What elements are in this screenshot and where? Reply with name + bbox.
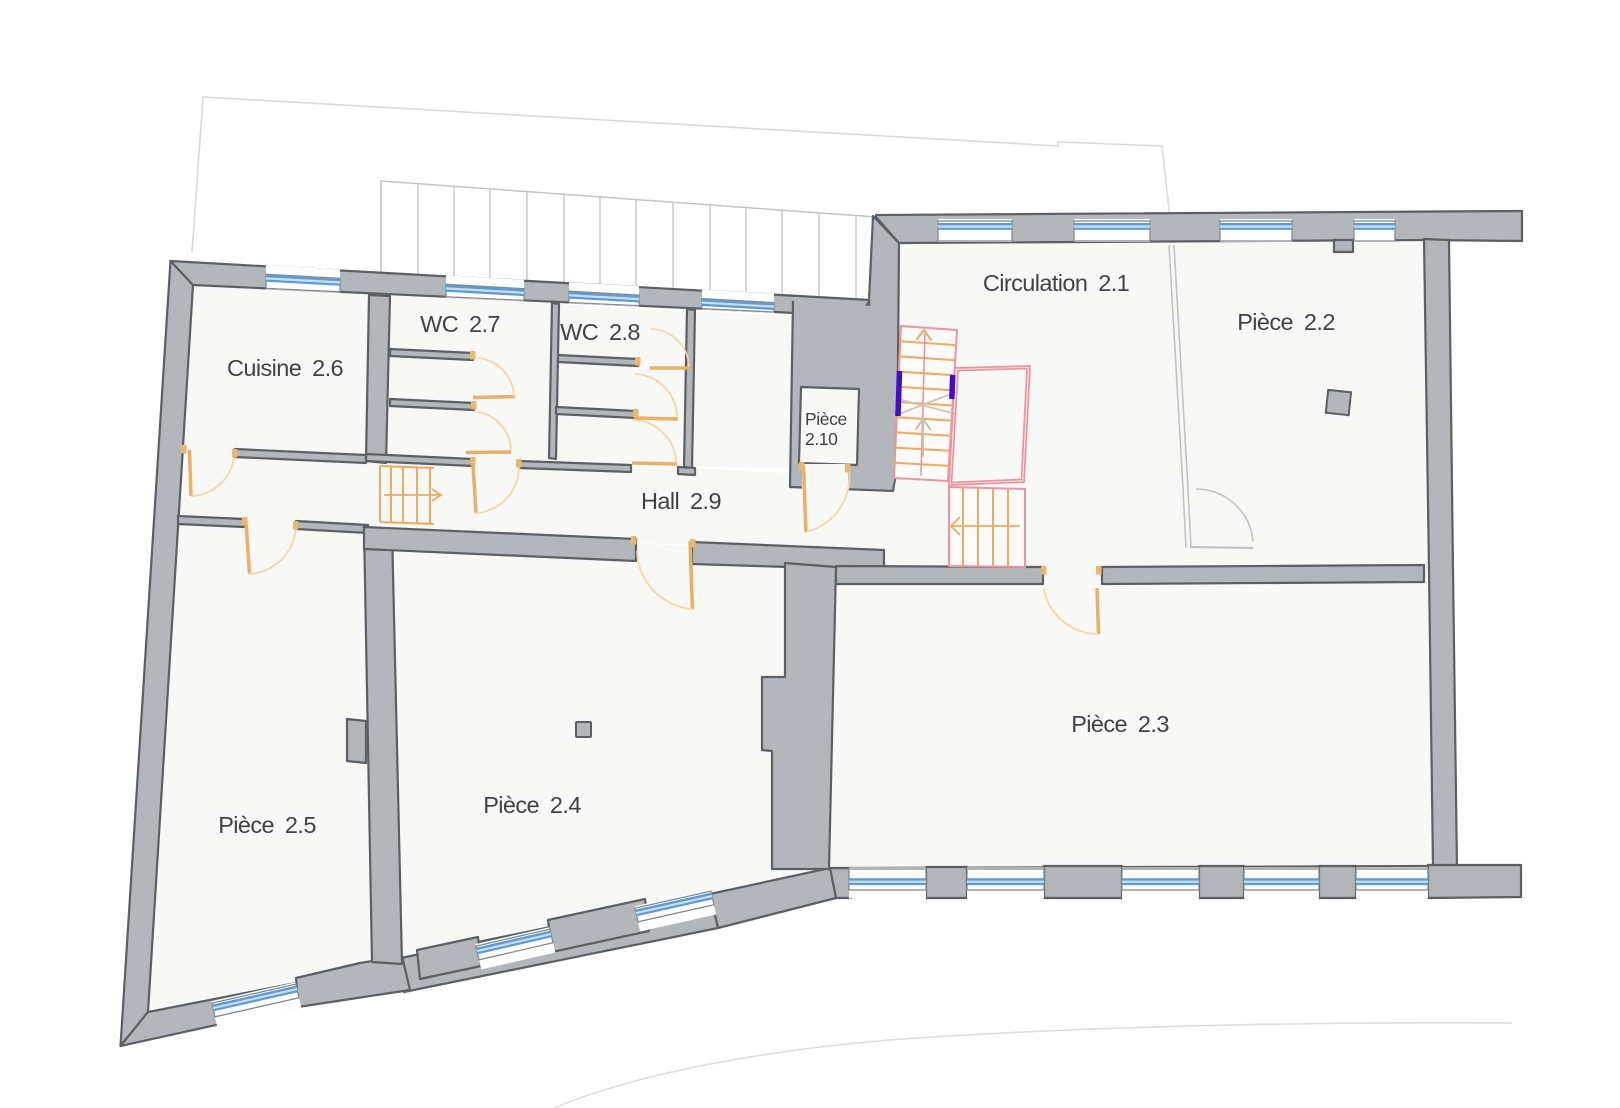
- svg-text:Pièce 2.4: Pièce 2.4: [483, 792, 581, 818]
- svg-text:2.10: 2.10: [805, 429, 838, 449]
- svg-text:Circulation 2.1: Circulation 2.1: [983, 270, 1129, 296]
- svg-text:Hall 2.9: Hall 2.9: [641, 488, 721, 514]
- svg-text:WC 2.8: WC 2.8: [560, 319, 640, 345]
- svg-text:WC 2.7: WC 2.7: [420, 311, 500, 337]
- svg-text:Pièce 2.2: Pièce 2.2: [1237, 309, 1335, 335]
- svg-text:Pièce 2.5: Pièce 2.5: [218, 812, 316, 838]
- svg-text:Cuisine 2.6: Cuisine 2.6: [227, 355, 343, 381]
- svg-text:Pièce: Pièce: [805, 409, 847, 429]
- svg-text:Pièce 2.3: Pièce 2.3: [1071, 711, 1169, 737]
